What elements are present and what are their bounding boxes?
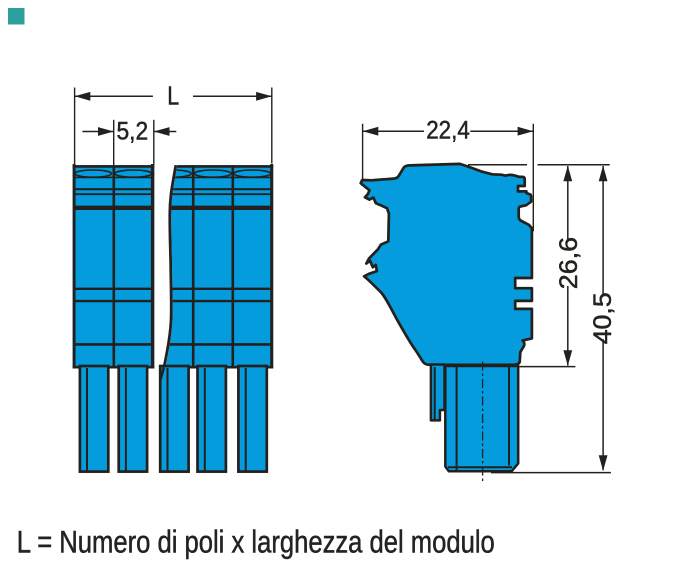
svg-text:L: L — [167, 83, 179, 111]
svg-text:26,6: 26,6 — [555, 237, 583, 289]
svg-text:5,2: 5,2 — [117, 118, 149, 146]
svg-text:40,5: 40,5 — [589, 292, 617, 344]
svg-text:22,4: 22,4 — [426, 117, 470, 145]
svg-text:L = Numero di poli x larghezza: L = Numero di poli x larghezza del modul… — [17, 523, 495, 559]
